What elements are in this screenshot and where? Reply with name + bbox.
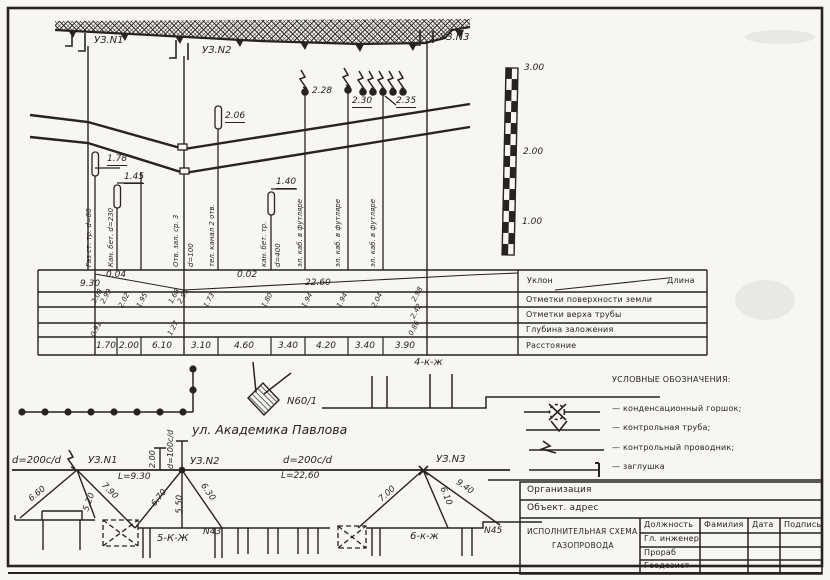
distance-value: 2.00 — [115, 342, 143, 351]
scale-staff — [502, 68, 518, 255]
plan-building-label: N60/1 — [287, 397, 317, 407]
distance-value: 3.10 — [187, 342, 215, 351]
utility-label: тел. канал 2 отв. — [209, 204, 216, 267]
scan-smudge — [735, 280, 795, 320]
elevation-mark: 2.35 — [396, 97, 416, 108]
station-label-uz2: УЗ.N2 — [202, 46, 232, 56]
control-tube-symbol — [526, 421, 600, 431]
elevation-mark: 1.78 — [107, 155, 127, 166]
org-row-label: Организация — [527, 486, 592, 495]
col-header-signature: Подпись — [784, 521, 821, 529]
segment1-length-label: L=9.30 — [118, 473, 151, 482]
role-surveyor: Геодезист — [644, 562, 689, 570]
table-header-surface: Отметки поверхности земли — [526, 296, 652, 304]
utility-label: Газ ст. тр. d=80 — [86, 208, 93, 267]
house5-label: 5-К-Ж — [157, 534, 188, 544]
col-header-name: Фамилия — [704, 521, 744, 529]
dim-2m-label: 2.00 — [149, 450, 157, 468]
legend-title: УСЛОВНЫЕ ОБОЗНАЧЕНИЯ: — [612, 376, 731, 384]
pipe-spec-right: d=200c/d — [283, 456, 332, 466]
scan-smudge — [745, 30, 815, 44]
control-conductor-symbol — [529, 441, 604, 453]
street-name: ул. Академика Павлова — [192, 424, 347, 437]
doc-title-line2: ГАЗОПРОВОДА — [552, 542, 614, 550]
col-header-role: Должность — [644, 521, 693, 529]
utility-label: кан. бет. тр. — [261, 222, 268, 267]
distance-value: 4.60 — [230, 342, 258, 351]
abris-uz3-label: УЗ.N3 — [436, 455, 466, 465]
branch-spec-label: d=100c/d — [167, 430, 175, 469]
existing-line-dots — [18, 365, 196, 415]
utility-label: Отв. зал. ср. 3 — [173, 215, 180, 267]
pipe-spec-left: d=200c/d — [12, 456, 61, 466]
plan-house4-label: 4-к-ж — [414, 358, 443, 368]
house6-label: 6-к-ж — [410, 532, 439, 542]
segment2-length-label: L=22,60 — [281, 472, 319, 481]
elevation-mark: 1.40 — [276, 178, 296, 189]
tie-length: 5.50 — [176, 495, 185, 514]
segment-length: 22.60 — [305, 279, 331, 288]
table-header-slope: Уклон — [527, 277, 553, 285]
scale-mark: 1.00 — [522, 218, 542, 227]
legend-item: — заглушка — [612, 463, 665, 471]
distance-value: 3.40 — [351, 342, 379, 351]
utility-label: эл. каб. в футляре — [370, 199, 377, 267]
role-chief-engineer: Гл. инженер — [644, 535, 699, 543]
station-label-uz1: УЗ.N1 — [94, 36, 124, 46]
doc-title-line1: ИСПОЛНИТЕЛЬНАЯ СХЕМА — [527, 528, 637, 536]
elevation-mark: 1.45 — [124, 173, 144, 184]
distance-value: 3.40 — [274, 342, 302, 351]
scale-mark: 2.00 — [523, 148, 543, 157]
house6-corner-number: N45 — [484, 527, 502, 536]
col-header-date: Дата — [752, 521, 774, 529]
role-foreman: Прораб — [644, 549, 676, 557]
utility-label: d=100 — [188, 243, 195, 267]
table-header-pipe-top: Отметки верха трубы — [526, 311, 622, 319]
legend-item: — контрольный проводник; — [612, 444, 734, 452]
table-header-length: Длина — [667, 277, 695, 285]
elevation-mark: 2.28 — [312, 87, 332, 96]
legend-item: — контрольная труба; — [612, 424, 710, 432]
utility-label: эл. каб. в футляре — [335, 199, 342, 267]
segment-slope: 0.04 — [106, 271, 126, 280]
abris-uz1-label: УЗ.N1 — [88, 456, 118, 466]
plan-linework — [18, 362, 660, 416]
distance-value: 3.90 — [391, 342, 419, 351]
distance-value: 4.20 — [312, 342, 340, 351]
table-header-distance: Расстояние — [526, 342, 576, 350]
legend-item: — конденсационный горшок; — [612, 405, 741, 413]
abris-uz2-label: УЗ.N2 — [190, 457, 220, 467]
house5-corner-number: N43 — [203, 528, 221, 537]
object-row-label: Объект. адрес — [527, 504, 598, 513]
elevation-mark: 2.30 — [352, 97, 372, 108]
scale-mark: 3.00 — [524, 64, 544, 73]
distance-value: 6.10 — [148, 342, 176, 351]
building-corner-hatch — [248, 383, 279, 415]
station-label-uz3: УЗ.N3 — [440, 33, 470, 43]
slope-diagonals — [95, 273, 668, 290]
plug-symbol — [529, 463, 599, 477]
utility-label: d=400 — [275, 243, 282, 267]
table-header-depth: Глубина заложения — [526, 326, 613, 334]
elevation-mark: 2.06 — [225, 112, 245, 123]
segment-slope: 0.02 — [237, 271, 257, 280]
drawing-sheet: УЗ.N1 УЗ.N2 УЗ.N3 1.78 1.45 2.06 1.40 2.… — [0, 0, 830, 580]
utility-label: Кан. бет. d=230 — [108, 208, 115, 267]
utility-label: эл. каб. в футляре — [297, 199, 304, 267]
condensate-pot-symbol — [524, 404, 600, 420]
